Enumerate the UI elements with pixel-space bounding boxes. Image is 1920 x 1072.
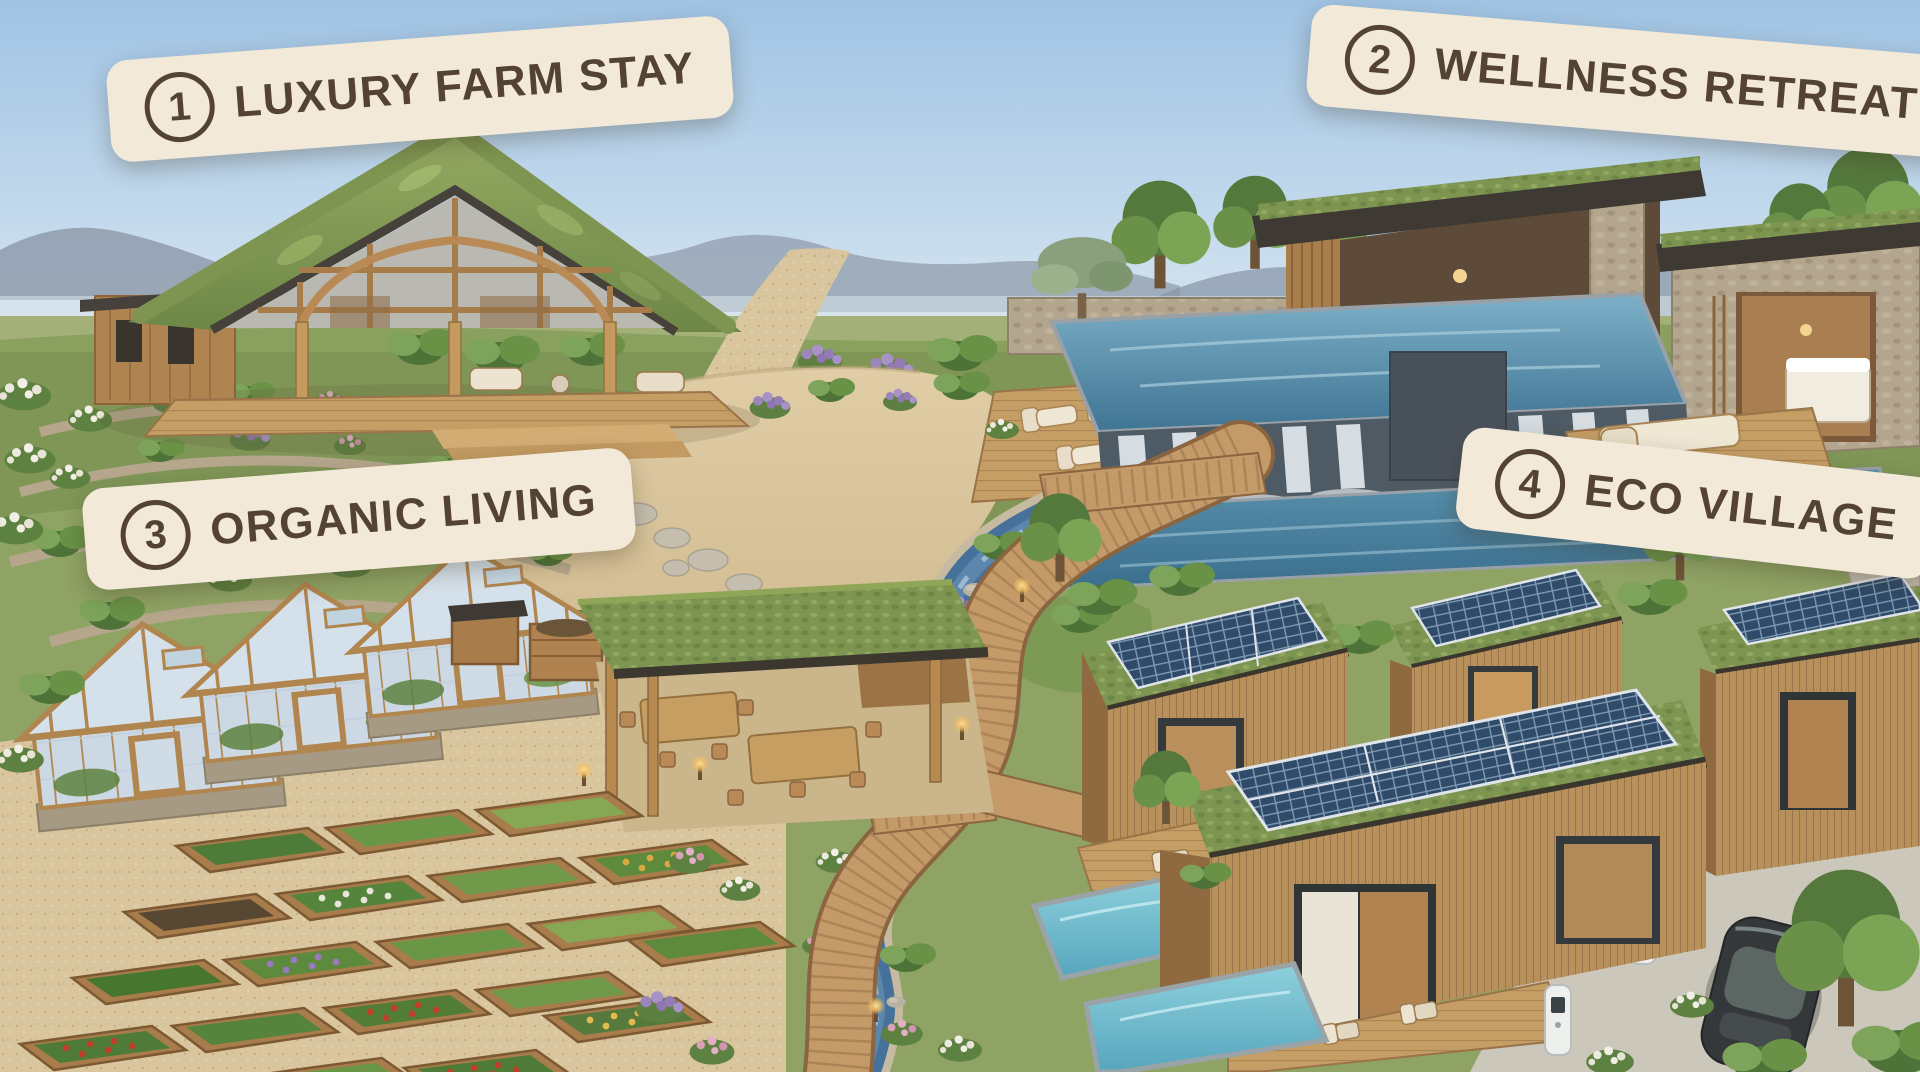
zone-title: ECO VILLAGE: [1582, 465, 1900, 550]
zone-number-badge: 4: [1491, 445, 1568, 522]
dining-pergola: [578, 582, 994, 832]
zone-title: ORGANIC LIVING: [208, 475, 598, 555]
eco-resort-illustration: 1 LUXURY FARM STAY 2 WELLNESS RETREAT 3 …: [0, 0, 1920, 1072]
ev-charger: [1545, 985, 1571, 1055]
zone-number-badge: 3: [118, 497, 193, 572]
zone-title: WELLNESS RETREAT: [1433, 40, 1920, 130]
zone-number-badge: 1: [142, 70, 217, 145]
zone-title: LUXURY FARM STAY: [233, 43, 697, 127]
zone-number-badge: 2: [1342, 22, 1418, 98]
